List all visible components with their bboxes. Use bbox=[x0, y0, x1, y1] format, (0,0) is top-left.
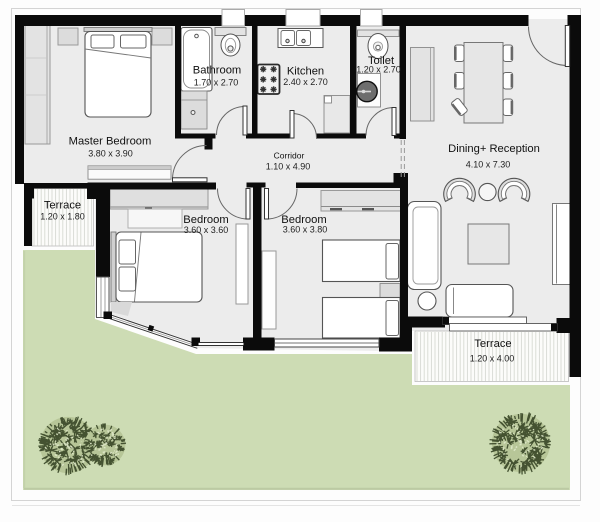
svg-text:3.60 x 3.60: 3.60 x 3.60 bbox=[184, 225, 229, 235]
svg-text:Corridor: Corridor bbox=[274, 151, 305, 161]
svg-text:Bathroom: Bathroom bbox=[193, 65, 242, 77]
svg-text:4.10 x 7.30: 4.10 x 7.30 bbox=[466, 160, 511, 170]
svg-text:2.40 x 2.70: 2.40 x 2.70 bbox=[283, 77, 328, 87]
svg-text:1.20 x 2.70: 1.20 x 2.70 bbox=[356, 65, 401, 75]
svg-text:Terrace: Terrace bbox=[474, 338, 511, 350]
svg-text:1.20 x 4.00: 1.20 x 4.00 bbox=[470, 354, 515, 364]
svg-text:Kitchen: Kitchen bbox=[287, 66, 324, 78]
svg-text:3.60 x 3.80: 3.60 x 3.80 bbox=[283, 225, 328, 235]
svg-text:Terrace: Terrace bbox=[44, 200, 81, 212]
svg-text:1.10 x 4.90: 1.10 x 4.90 bbox=[266, 162, 311, 172]
svg-text:1.70 x 2.70: 1.70 x 2.70 bbox=[194, 78, 239, 88]
svg-text:Dining+ Reception: Dining+ Reception bbox=[448, 143, 540, 155]
svg-text:1.20 x 1.80: 1.20 x 1.80 bbox=[40, 212, 85, 222]
svg-text:3.80 x 3.90: 3.80 x 3.90 bbox=[88, 149, 133, 159]
svg-text:Master Bedroom: Master Bedroom bbox=[69, 136, 152, 148]
